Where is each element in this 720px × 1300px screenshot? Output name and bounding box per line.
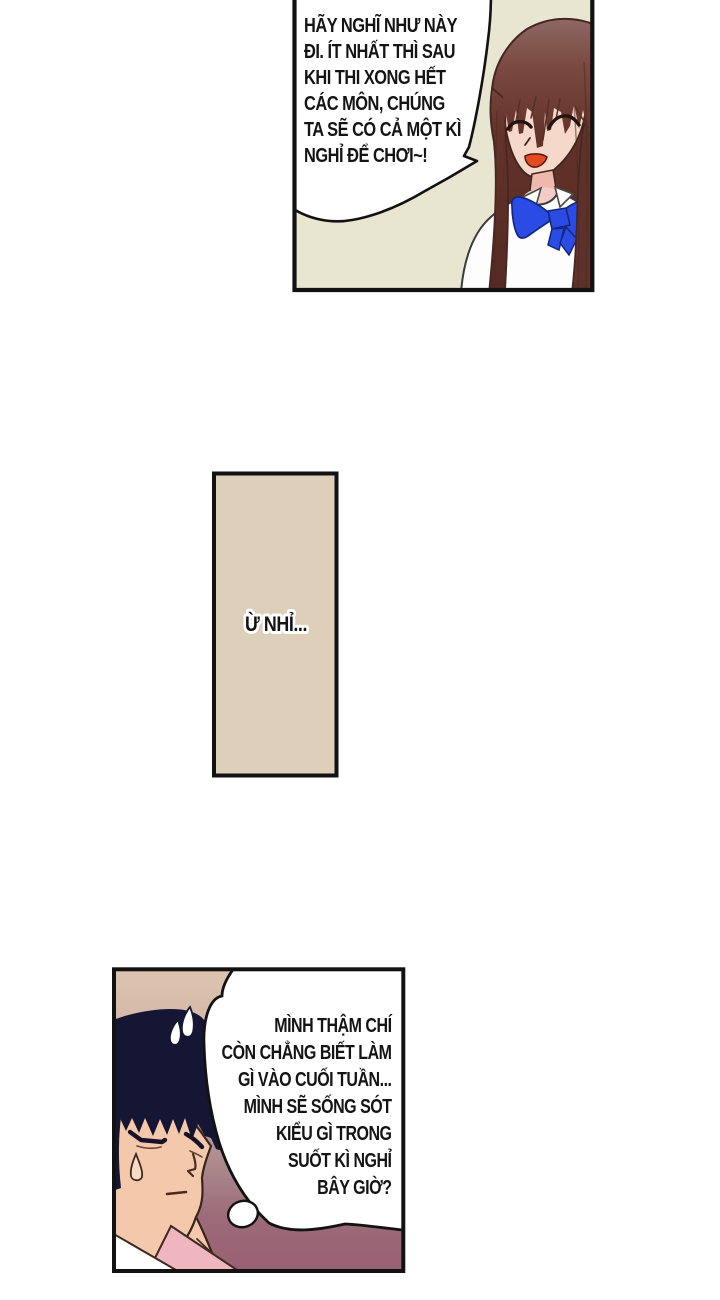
svg-text:Ừ NHỈ...: Ừ NHỈ... (245, 612, 307, 636)
